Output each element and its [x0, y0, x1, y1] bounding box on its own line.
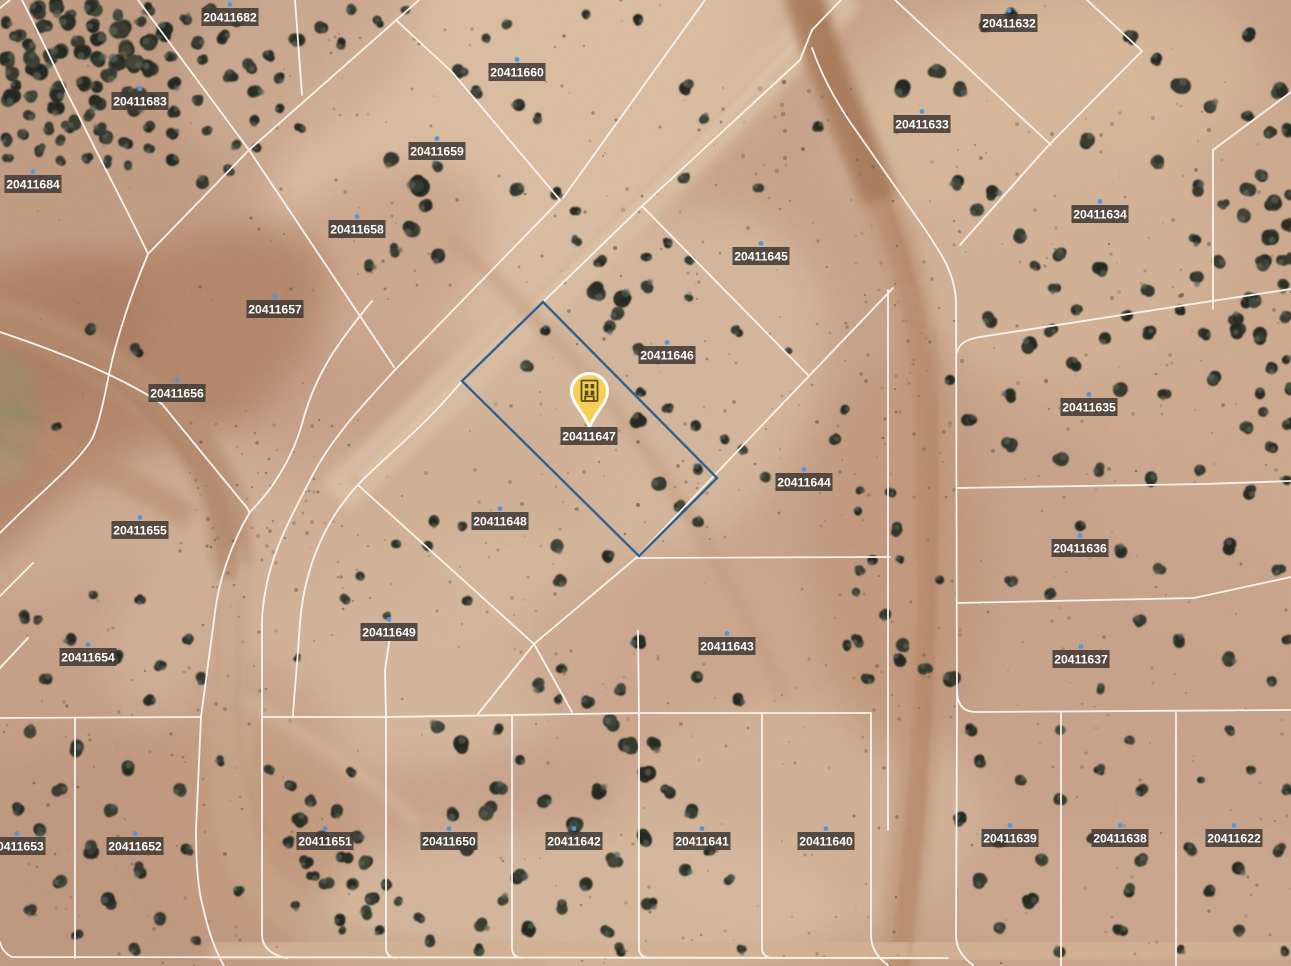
- svg-text:20411655: 20411655: [113, 524, 167, 538]
- svg-text:20411654: 20411654: [61, 651, 115, 665]
- svg-text:20411684: 20411684: [6, 178, 60, 192]
- svg-text:20411639: 20411639: [983, 832, 1037, 846]
- svg-text:20411632: 20411632: [982, 17, 1036, 31]
- svg-text:20411647: 20411647: [562, 430, 616, 444]
- svg-text:20411650: 20411650: [422, 835, 476, 849]
- svg-text:20411649: 20411649: [362, 626, 416, 640]
- svg-text:20411660: 20411660: [490, 66, 544, 80]
- svg-text:20411633: 20411633: [895, 118, 949, 132]
- svg-text:20411643: 20411643: [700, 640, 754, 654]
- svg-text:20411640: 20411640: [799, 835, 853, 849]
- svg-text:20411622: 20411622: [1207, 832, 1261, 846]
- svg-text:20411648: 20411648: [473, 515, 527, 529]
- svg-text:20411638: 20411638: [1093, 832, 1147, 846]
- svg-text:20411651: 20411651: [298, 835, 352, 849]
- svg-text:20411683: 20411683: [113, 95, 167, 109]
- svg-text:20411646: 20411646: [640, 349, 694, 363]
- svg-text:20411659: 20411659: [410, 145, 464, 159]
- svg-text:20411682: 20411682: [203, 11, 257, 25]
- svg-text:20411658: 20411658: [330, 223, 384, 237]
- svg-text:20411637: 20411637: [1054, 653, 1108, 667]
- svg-text:20411652: 20411652: [108, 840, 162, 854]
- svg-text:20411636: 20411636: [1053, 542, 1107, 556]
- svg-text:20411634: 20411634: [1073, 208, 1127, 222]
- svg-text:20411644: 20411644: [777, 476, 831, 490]
- svg-text:20411657: 20411657: [248, 303, 302, 317]
- svg-text:20411635: 20411635: [1062, 401, 1116, 415]
- svg-text:20411645: 20411645: [734, 250, 788, 264]
- svg-text:20411653: 20411653: [0, 840, 44, 854]
- svg-text:20411641: 20411641: [675, 835, 729, 849]
- svg-text:20411656: 20411656: [150, 387, 204, 401]
- svg-text:20411642: 20411642: [547, 835, 601, 849]
